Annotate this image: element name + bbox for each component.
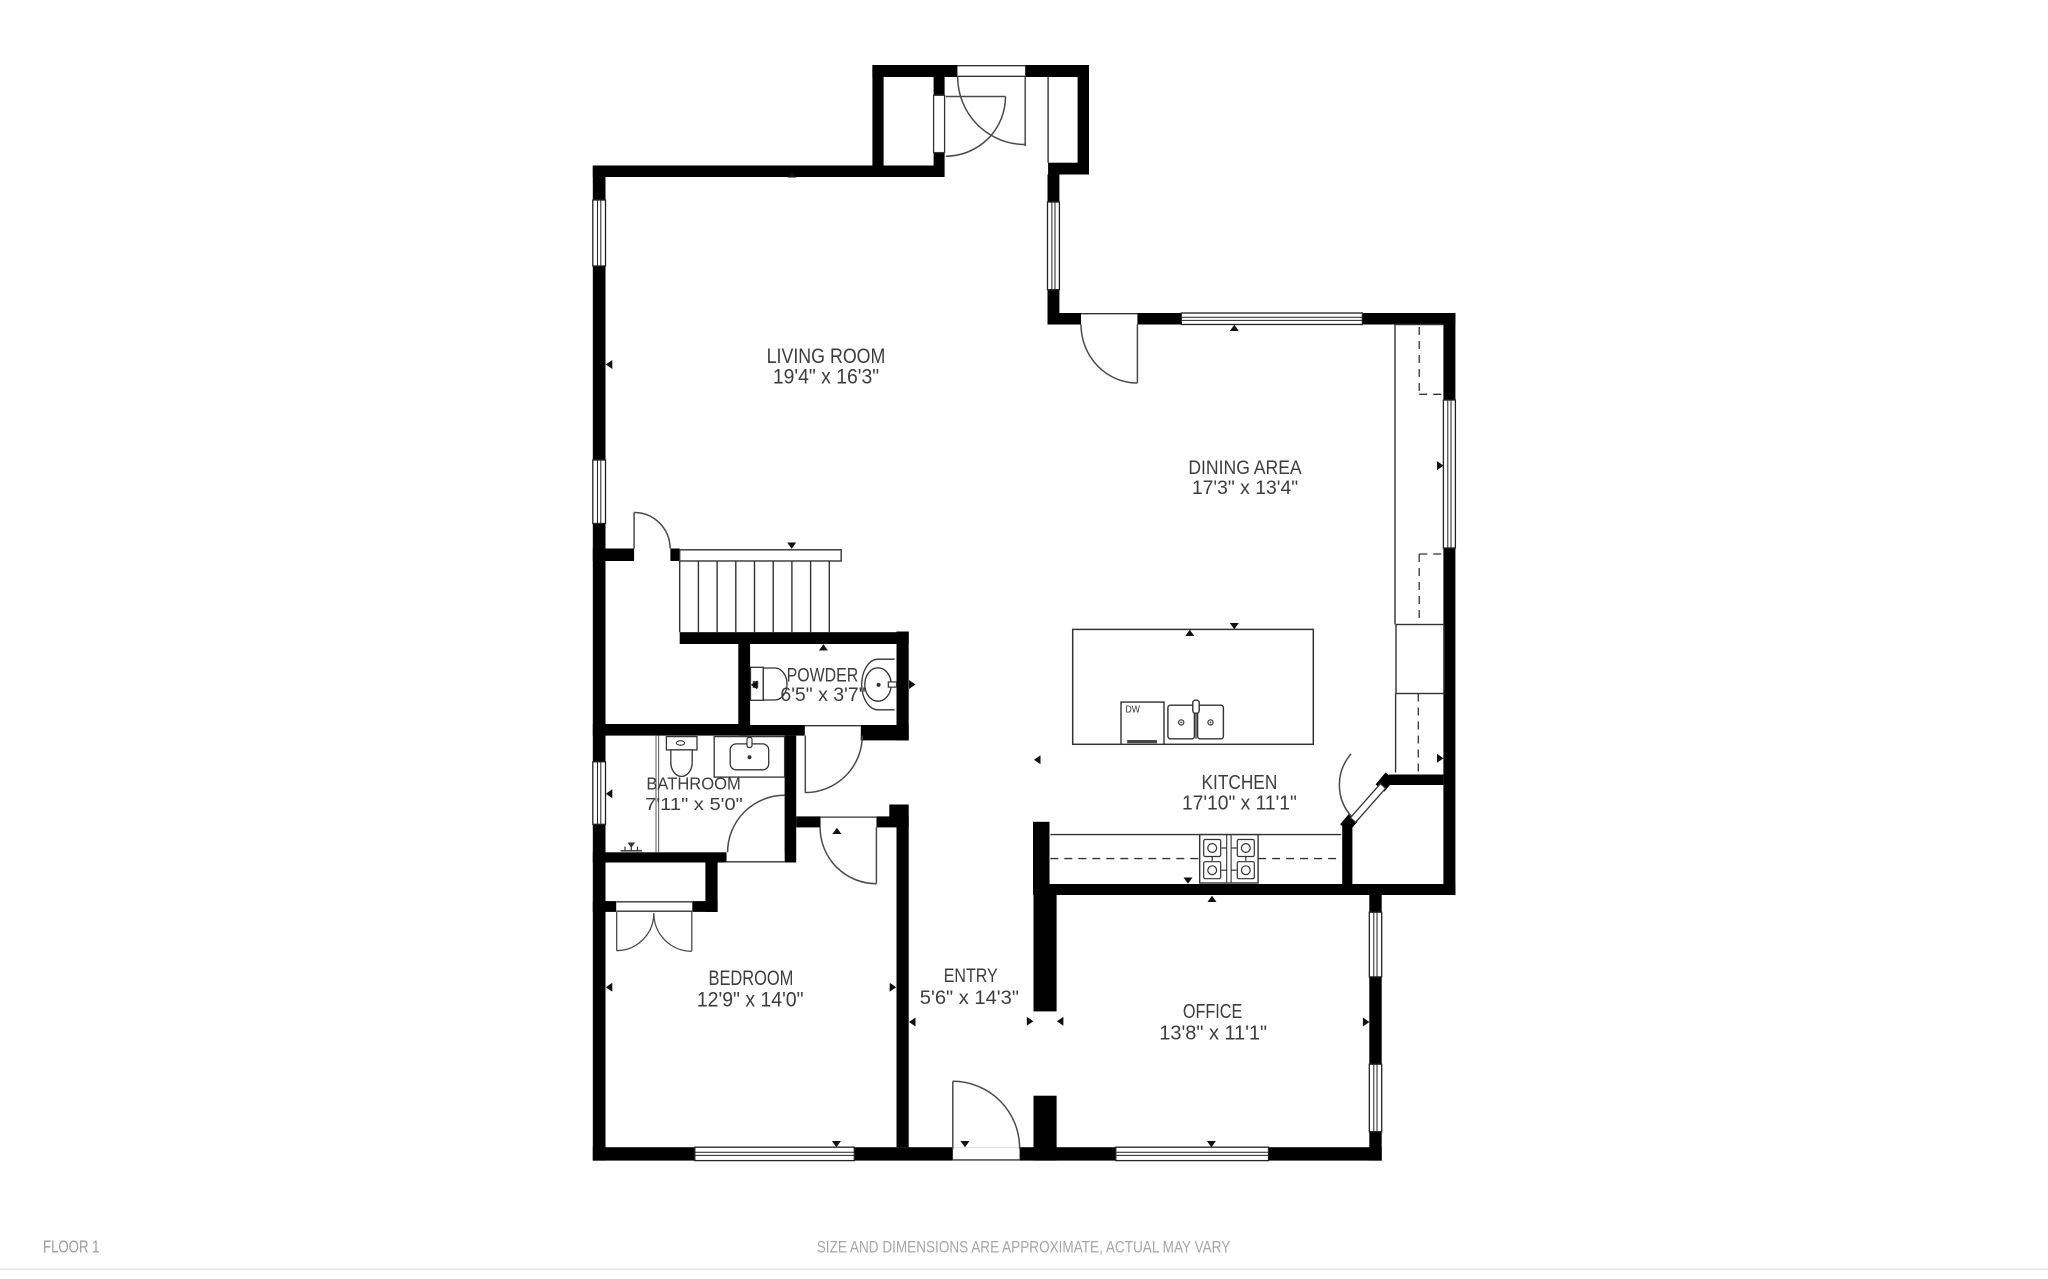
svg-text:17'10" x 11'1": 17'10" x 11'1": [1182, 791, 1297, 814]
svg-text:12'9" x 14'0": 12'9" x 14'0": [697, 988, 804, 1012]
svg-text:FLOOR 1: FLOOR 1: [43, 1237, 100, 1257]
svg-text:SIZE AND DIMENSIONS ARE APPROX: SIZE AND DIMENSIONS ARE APPROXIMATE, ACT…: [817, 1239, 1231, 1257]
svg-text:POWDER: POWDER: [787, 664, 859, 686]
svg-text:19'4" x 16'3": 19'4" x 16'3": [773, 366, 879, 389]
svg-text:ENTRY: ENTRY: [944, 966, 998, 987]
svg-text:BATHROOM: BATHROOM: [646, 774, 740, 794]
svg-text:7'11" x 5'0": 7'11" x 5'0": [645, 794, 743, 814]
svg-text:5'6" x 14'3": 5'6" x 14'3": [920, 988, 1019, 1009]
svg-text:LIVING ROOM: LIVING ROOM: [767, 345, 886, 368]
svg-text:BEDROOM: BEDROOM: [709, 966, 794, 990]
svg-text:6'5" x 3'7": 6'5" x 3'7": [780, 684, 865, 706]
svg-text:DW: DW: [1126, 704, 1141, 716]
svg-text:DINING AREA: DINING AREA: [1188, 457, 1301, 479]
svg-text:13'8" x 11'1": 13'8" x 11'1": [1159, 1023, 1267, 1045]
svg-text:17'3" x 13'4": 17'3" x 13'4": [1192, 477, 1298, 499]
svg-text:OFFICE: OFFICE: [1183, 1001, 1243, 1023]
